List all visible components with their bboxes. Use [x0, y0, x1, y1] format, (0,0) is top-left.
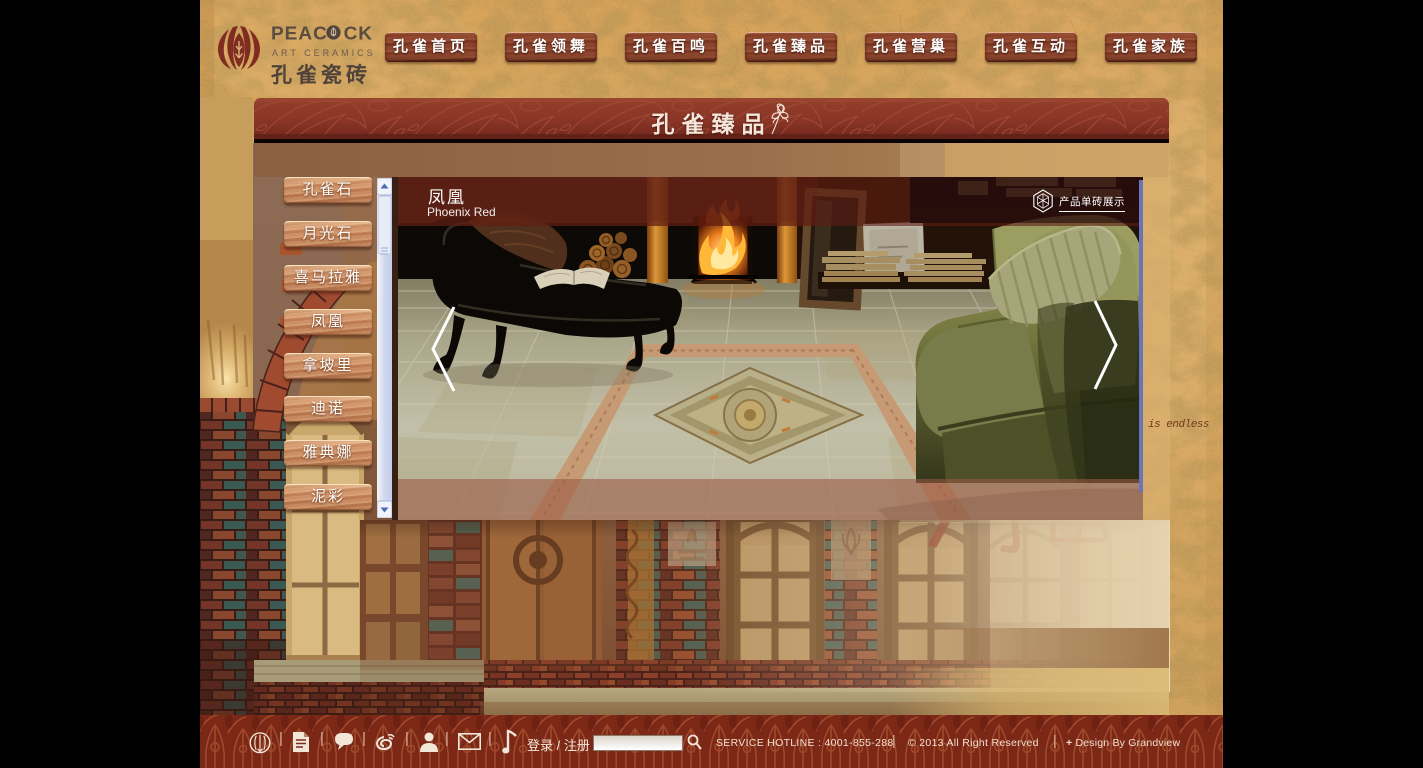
svg-text:is endless: is endless	[1148, 419, 1209, 431]
